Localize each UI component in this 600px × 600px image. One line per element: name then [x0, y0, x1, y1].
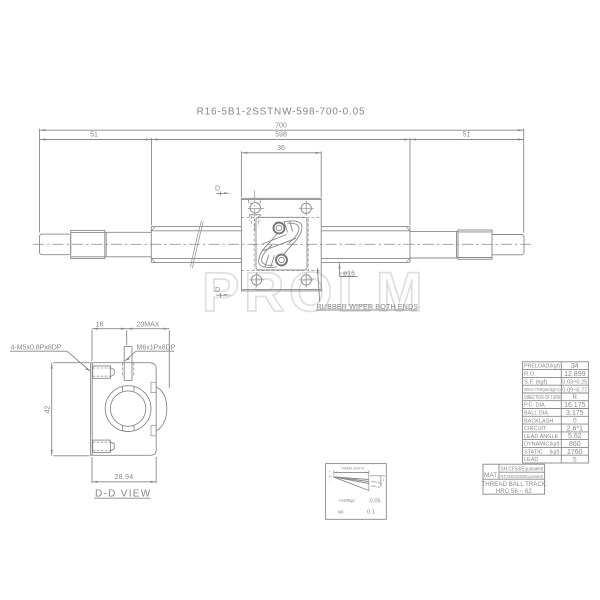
svg-text:NT:SNCM220/Equivalent: NT:SNCM220/Equivalent	[501, 474, 544, 480]
svg-text:5.62: 5.62	[568, 433, 582, 440]
svg-text:0: 0	[573, 417, 577, 424]
svg-text:(kgf): (kgf)	[550, 442, 560, 448]
svg-text:3.175: 3.175	[566, 410, 584, 417]
svg-text:12.899: 12.899	[564, 371, 586, 378]
svg-text:DIRECTION OF TURN: DIRECTION OF TURN	[524, 395, 561, 401]
svg-text:0.1: 0.1	[367, 510, 375, 516]
svg-text:S.F. (kgf): S.F. (kgf)	[524, 379, 547, 385]
svg-text:+V300φc: +V300φc	[338, 498, 355, 503]
svg-text:R: R	[573, 395, 578, 401]
svg-text:φp:: φp:	[338, 509, 344, 514]
svg-text:BACKLASH: BACKLASH	[524, 418, 553, 424]
svg-text:+: +	[329, 470, 331, 474]
svg-text:36: 36	[277, 145, 285, 152]
svg-text:0.05: 0.05	[370, 499, 381, 505]
svg-text:ø16: ø16	[343, 270, 355, 277]
svg-text:P.C. DIA.: P.C. DIA.	[524, 403, 547, 409]
svg-text:D: D	[215, 287, 220, 294]
svg-text:598: 598	[275, 132, 287, 139]
svg-text:R.O.: R.O.	[524, 372, 536, 378]
svg-text:2.6*1: 2.6*1	[567, 425, 583, 432]
svg-text:42: 42	[44, 406, 51, 414]
svg-text:700: 700	[275, 122, 287, 129]
svg-text:1760: 1760	[567, 449, 583, 456]
svg-text:Hp: Hp	[377, 485, 381, 489]
svg-text:0.03~0.25: 0.03~0.25	[562, 380, 587, 386]
svg-text:Ha: Ha	[377, 481, 381, 485]
svg-text:51: 51	[90, 132, 98, 139]
svg-text:LEAD ANGLE: LEAD ANGLE	[524, 434, 559, 440]
svg-text:t: t	[383, 479, 384, 483]
svg-text:(kgf): (kgf)	[550, 449, 560, 455]
svg-text:PRELOAD(kgf): PRELOAD(kgf)	[524, 364, 560, 370]
svg-text:R16-5B1-2SSTNW-598-700-0.05: R16-5B1-2SSTNW-598-700-0.05	[197, 107, 366, 118]
svg-text:16: 16	[96, 321, 104, 328]
svg-text:LEAD: LEAD	[524, 457, 538, 463]
svg-text:20MAX: 20MAX	[137, 321, 160, 328]
svg-text:28.94: 28.94	[114, 474, 133, 481]
svg-text:0.09~0.77: 0.09~0.77	[562, 387, 587, 393]
svg-text:DRAG TORQUE(kgf-m): DRAG TORQUE(kgf-m)	[524, 387, 561, 393]
svg-text:HRC 56 ~ 62: HRC 56 ~ 62	[496, 488, 532, 495]
svg-text:34: 34	[571, 363, 579, 370]
svg-text:BALL DIA.: BALL DIA.	[524, 411, 550, 417]
svg-text:860: 860	[569, 441, 581, 448]
svg-text:CIRCUIT: CIRCUIT	[524, 426, 547, 432]
svg-text:M6x1Px8DP: M6x1Px8DP	[137, 344, 176, 351]
svg-text:5: 5	[573, 456, 577, 463]
svg-text:51: 51	[463, 132, 471, 139]
svg-text:THREAD LENGTH: THREAD LENGTH	[341, 466, 364, 471]
svg-text:DYNAMIC: DYNAMIC	[524, 442, 549, 448]
svg-text:STATIC: STATIC	[524, 449, 543, 455]
svg-text:SH:CF53/Equivalent: SH:CF53/Equivalent	[501, 467, 545, 473]
svg-text:PROLM: PROLM	[202, 260, 427, 323]
svg-text:MAT.: MAT.	[484, 472, 499, 479]
svg-text:RUBBER WIPER BOTH ENDS: RUBBER WIPER BOTH ENDS	[317, 302, 419, 311]
svg-text:16.175: 16.175	[564, 402, 586, 409]
svg-text:4-M5x0.8Px8DP: 4-M5x0.8Px8DP	[11, 344, 62, 351]
svg-text:D: D	[215, 186, 220, 193]
